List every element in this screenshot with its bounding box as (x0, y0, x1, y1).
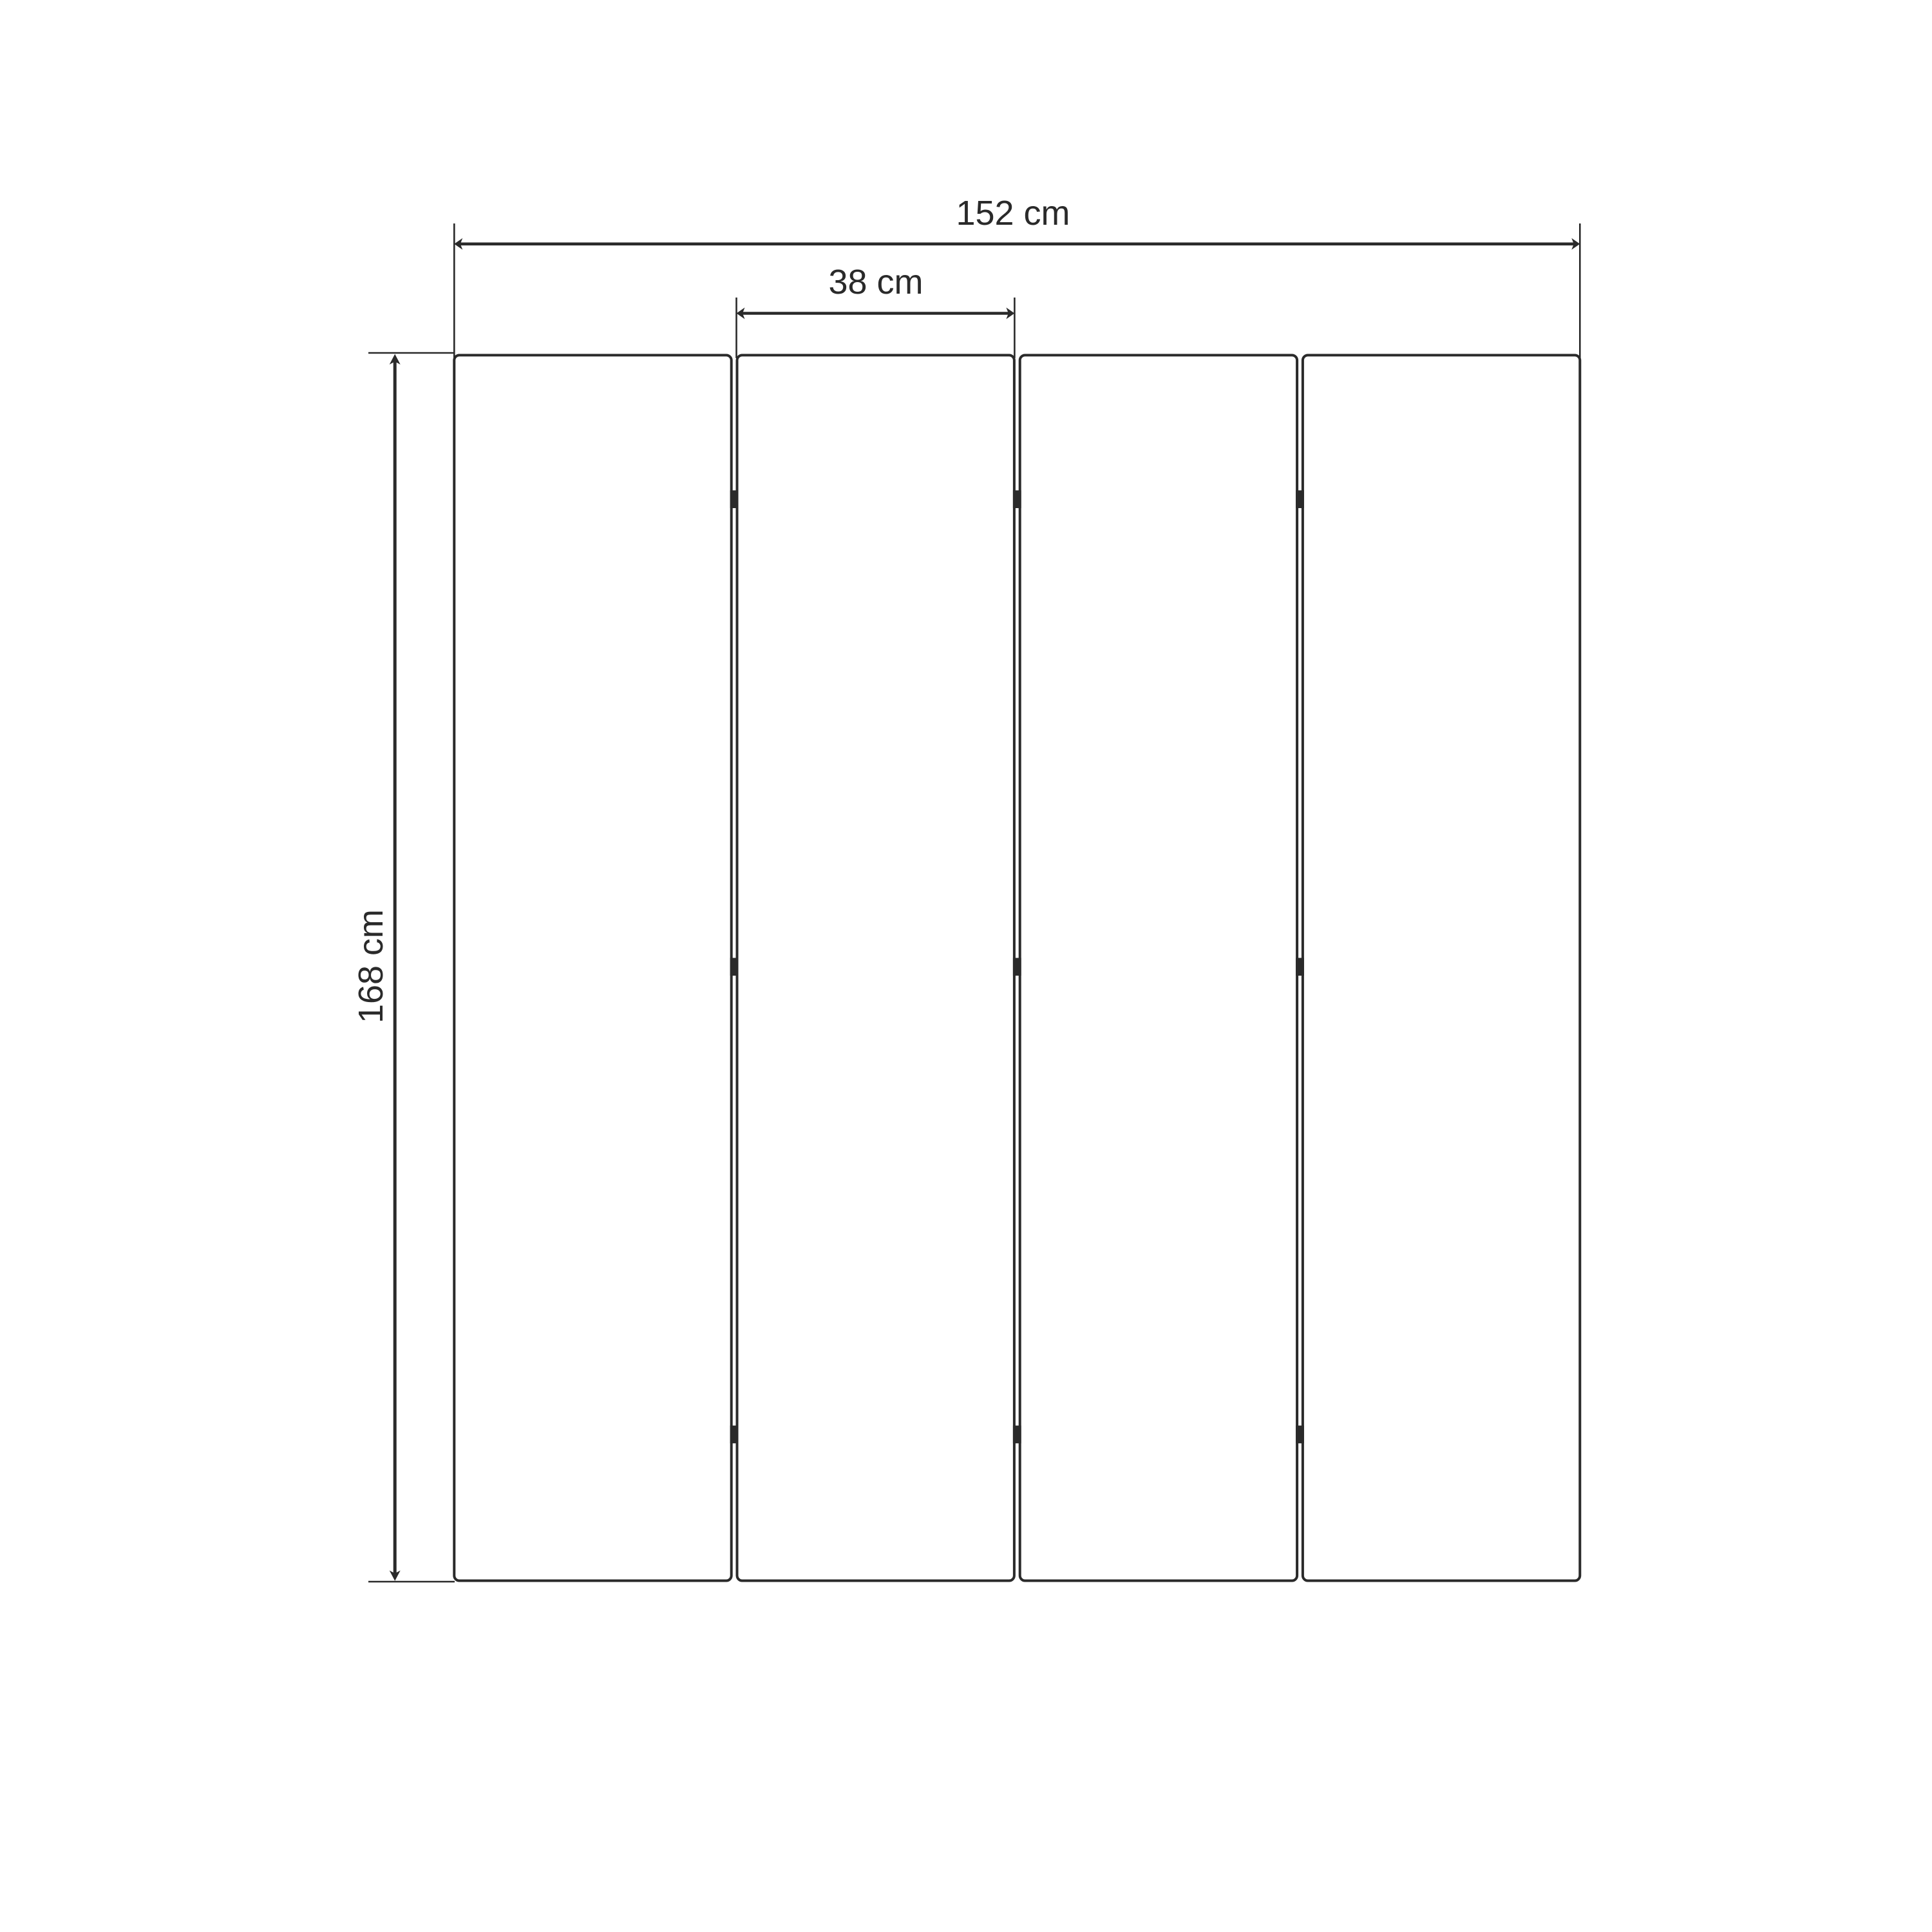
svg-text:38 cm: 38 cm (828, 263, 923, 301)
svg-text:168 cm: 168 cm (352, 909, 390, 1023)
svg-text:152 cm: 152 cm (956, 194, 1070, 232)
